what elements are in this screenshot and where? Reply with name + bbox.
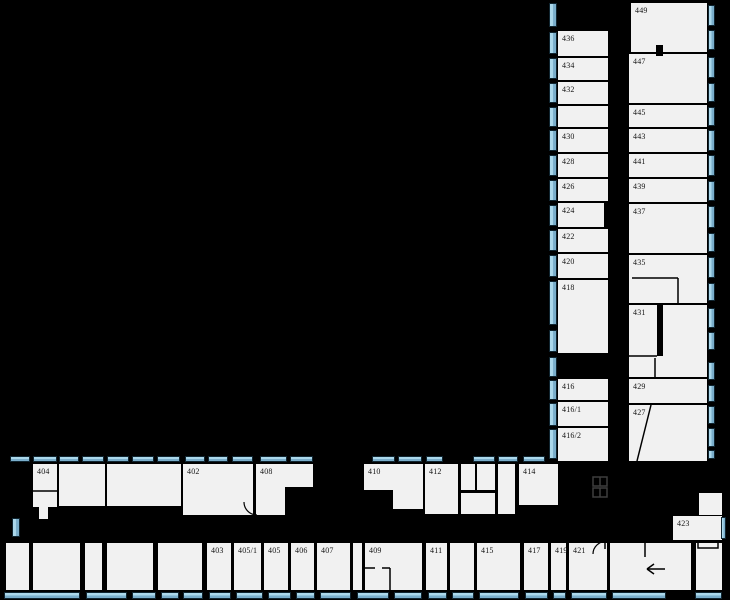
window bbox=[473, 456, 495, 462]
room-label: 418 bbox=[562, 283, 575, 292]
window bbox=[549, 155, 557, 176]
room-label: 406 bbox=[295, 546, 308, 555]
room-435: 435 bbox=[629, 255, 707, 303]
room-label: 429 bbox=[633, 382, 646, 391]
room-unlabeled-37 bbox=[461, 493, 495, 514]
window bbox=[708, 83, 715, 102]
room-410: 410 bbox=[364, 464, 423, 490]
room-label: 416/2 bbox=[562, 431, 581, 440]
room-label: 447 bbox=[633, 57, 646, 66]
window bbox=[290, 456, 313, 462]
window bbox=[426, 456, 443, 462]
room-label: 437 bbox=[633, 207, 646, 216]
shaft-symbol bbox=[593, 477, 607, 486]
room-label: 410 bbox=[368, 467, 381, 476]
room-unlabeled-40 bbox=[6, 543, 29, 590]
room-417: 417 bbox=[524, 543, 548, 590]
room-label: 414 bbox=[523, 467, 536, 476]
window bbox=[208, 456, 228, 462]
window bbox=[268, 592, 291, 599]
room-447: 447 bbox=[629, 54, 707, 103]
window bbox=[320, 592, 351, 599]
room-unlabeled-41 bbox=[33, 543, 80, 590]
room-label: 409 bbox=[369, 546, 382, 555]
window bbox=[357, 592, 389, 599]
room-label: 416/1 bbox=[562, 405, 581, 414]
window bbox=[708, 155, 715, 176]
room-label: 420 bbox=[562, 257, 575, 266]
room-406: 406 bbox=[291, 543, 314, 590]
symbols-overlay bbox=[0, 0, 730, 600]
shaft-symbol bbox=[593, 488, 607, 497]
room-unlabeled-58 bbox=[610, 543, 691, 590]
window bbox=[185, 456, 205, 462]
window bbox=[708, 181, 715, 201]
room-label: 445 bbox=[633, 108, 646, 117]
room-label: 431 bbox=[633, 308, 646, 317]
room-label: 407 bbox=[321, 546, 334, 555]
room-unlabeled-42 bbox=[85, 543, 102, 590]
window bbox=[571, 592, 607, 599]
room-421: 421 bbox=[569, 543, 607, 590]
window bbox=[549, 281, 557, 325]
window bbox=[236, 592, 263, 599]
room-label: 423 bbox=[677, 519, 690, 528]
room-445: 445 bbox=[629, 105, 707, 127]
room-422: 422 bbox=[558, 229, 608, 252]
window bbox=[296, 592, 315, 599]
room-label: 432 bbox=[562, 85, 575, 94]
window bbox=[33, 456, 57, 462]
room-unlabeled-50 bbox=[353, 543, 362, 590]
window bbox=[82, 456, 104, 462]
room-label: 416 bbox=[562, 382, 575, 391]
window bbox=[398, 456, 422, 462]
room-412: 412 bbox=[425, 464, 458, 514]
room-label: 417 bbox=[528, 546, 541, 555]
window bbox=[708, 130, 715, 151]
room-unlabeled-26 bbox=[39, 507, 48, 519]
room-label: 421 bbox=[573, 546, 586, 555]
room-416: 416 bbox=[558, 379, 608, 400]
window bbox=[157, 456, 180, 462]
room-407: 407 bbox=[317, 543, 350, 590]
room-unlabeled-27 bbox=[59, 464, 105, 506]
window bbox=[132, 592, 156, 599]
room-label: 426 bbox=[562, 182, 575, 191]
room-label: 439 bbox=[633, 182, 646, 191]
room-405: 405 bbox=[264, 543, 288, 590]
window bbox=[708, 332, 715, 350]
window bbox=[708, 450, 715, 459]
window bbox=[232, 456, 253, 462]
room-402: 402 bbox=[183, 464, 253, 515]
window bbox=[549, 403, 557, 426]
room-439: 439 bbox=[629, 179, 707, 202]
room-405-1: 405/1 bbox=[234, 543, 261, 590]
window bbox=[523, 456, 545, 462]
window bbox=[12, 518, 20, 537]
room-unlabeled-59 bbox=[696, 543, 722, 590]
window bbox=[59, 456, 79, 462]
window bbox=[708, 428, 715, 447]
window bbox=[708, 385, 715, 402]
room-unlabeled-36 bbox=[477, 464, 495, 490]
room-415: 415 bbox=[477, 543, 520, 590]
room-416-2: 416/2 bbox=[558, 428, 608, 461]
room-label: 424 bbox=[562, 206, 575, 215]
window bbox=[549, 429, 557, 459]
window bbox=[708, 30, 715, 50]
room-label: 405 bbox=[268, 546, 281, 555]
window bbox=[549, 330, 557, 352]
room-423: 423 bbox=[673, 516, 722, 540]
room-unlabeled-3 bbox=[558, 106, 608, 127]
room-424: 424 bbox=[558, 203, 604, 227]
room-label: 402 bbox=[187, 467, 200, 476]
window bbox=[132, 456, 154, 462]
window bbox=[260, 456, 287, 462]
window bbox=[695, 592, 722, 599]
room-414: 414 bbox=[519, 464, 558, 505]
room-449: 449 bbox=[631, 3, 707, 52]
window bbox=[161, 592, 179, 599]
window bbox=[183, 592, 203, 599]
room-label: 404 bbox=[37, 467, 50, 476]
room-label: 415 bbox=[481, 546, 494, 555]
room-label: 436 bbox=[562, 34, 575, 43]
room-434: 434 bbox=[558, 58, 608, 80]
window bbox=[479, 592, 519, 599]
window bbox=[708, 107, 715, 126]
room-label: 435 bbox=[633, 258, 646, 267]
window bbox=[372, 456, 395, 462]
room-428: 428 bbox=[558, 154, 608, 177]
window bbox=[708, 57, 715, 78]
window bbox=[549, 205, 557, 226]
room-unlabeled-28 bbox=[107, 464, 181, 506]
window bbox=[549, 58, 557, 79]
window bbox=[549, 230, 557, 251]
room-426: 426 bbox=[558, 179, 608, 201]
window bbox=[549, 107, 557, 127]
window bbox=[708, 406, 715, 424]
window bbox=[498, 456, 518, 462]
window bbox=[708, 257, 715, 278]
window bbox=[549, 180, 557, 201]
window bbox=[708, 283, 715, 301]
room-label: 441 bbox=[633, 157, 646, 166]
room-label: 419 bbox=[555, 546, 568, 555]
window bbox=[549, 255, 557, 277]
window bbox=[4, 592, 80, 599]
window bbox=[549, 83, 557, 103]
window bbox=[549, 380, 557, 400]
window bbox=[10, 456, 30, 462]
room-label: 411 bbox=[430, 546, 442, 555]
room-436: 436 bbox=[558, 31, 608, 56]
room-403: 403 bbox=[207, 543, 231, 590]
floorplan-canvas: 436434432430428426424422420418416416/141… bbox=[0, 0, 730, 600]
room-437: 437 bbox=[629, 204, 707, 253]
room-unlabeled-38 bbox=[498, 464, 515, 514]
room-429: 429 bbox=[629, 379, 707, 403]
room-label: 443 bbox=[633, 132, 646, 141]
window bbox=[708, 308, 715, 328]
window bbox=[525, 592, 548, 599]
room-label: 422 bbox=[562, 232, 575, 241]
room-label: 449 bbox=[635, 6, 648, 15]
window bbox=[549, 3, 557, 27]
room-431: 431 bbox=[629, 305, 707, 377]
room-404: 404 bbox=[33, 464, 57, 507]
room-label: 428 bbox=[562, 157, 575, 166]
window bbox=[428, 592, 447, 599]
room-unlabeled-53 bbox=[450, 543, 474, 590]
room-label: 405/1 bbox=[238, 546, 257, 555]
room-416-1: 416/1 bbox=[558, 402, 608, 426]
window bbox=[708, 233, 715, 252]
window bbox=[708, 362, 715, 380]
window bbox=[549, 357, 557, 377]
window bbox=[708, 5, 715, 26]
room-441: 441 bbox=[629, 154, 707, 177]
window bbox=[107, 456, 129, 462]
room-label: 403 bbox=[211, 546, 224, 555]
room-419: 419 bbox=[551, 543, 566, 590]
room-unlabeled-43 bbox=[107, 543, 153, 590]
window bbox=[549, 130, 557, 151]
room-443: 443 bbox=[629, 129, 707, 152]
window bbox=[549, 32, 557, 54]
room-427: 427 bbox=[629, 405, 707, 461]
room-418: 418 bbox=[558, 280, 608, 353]
room-430: 430 bbox=[558, 129, 608, 152]
window bbox=[553, 592, 566, 599]
room-label: 427 bbox=[633, 408, 646, 417]
room-label: 430 bbox=[562, 132, 575, 141]
room-420: 420 bbox=[558, 254, 608, 278]
window bbox=[86, 592, 127, 599]
window bbox=[452, 592, 474, 599]
room-unlabeled-31 bbox=[256, 487, 285, 515]
window bbox=[708, 206, 715, 228]
window bbox=[394, 592, 422, 599]
room-409: 409 bbox=[365, 543, 422, 590]
window bbox=[721, 517, 726, 539]
room-label: 408 bbox=[260, 467, 273, 476]
room-408: 408 bbox=[256, 464, 313, 487]
room-432: 432 bbox=[558, 82, 608, 104]
window bbox=[612, 592, 666, 599]
window bbox=[209, 592, 231, 599]
room-label: 434 bbox=[562, 61, 575, 70]
room-411: 411 bbox=[426, 543, 447, 590]
room-unlabeled-35 bbox=[461, 464, 475, 490]
room-unlabeled-33 bbox=[393, 490, 423, 509]
room-unlabeled-61 bbox=[699, 493, 722, 515]
room-label: 412 bbox=[429, 467, 442, 476]
room-unlabeled-44 bbox=[158, 543, 202, 590]
